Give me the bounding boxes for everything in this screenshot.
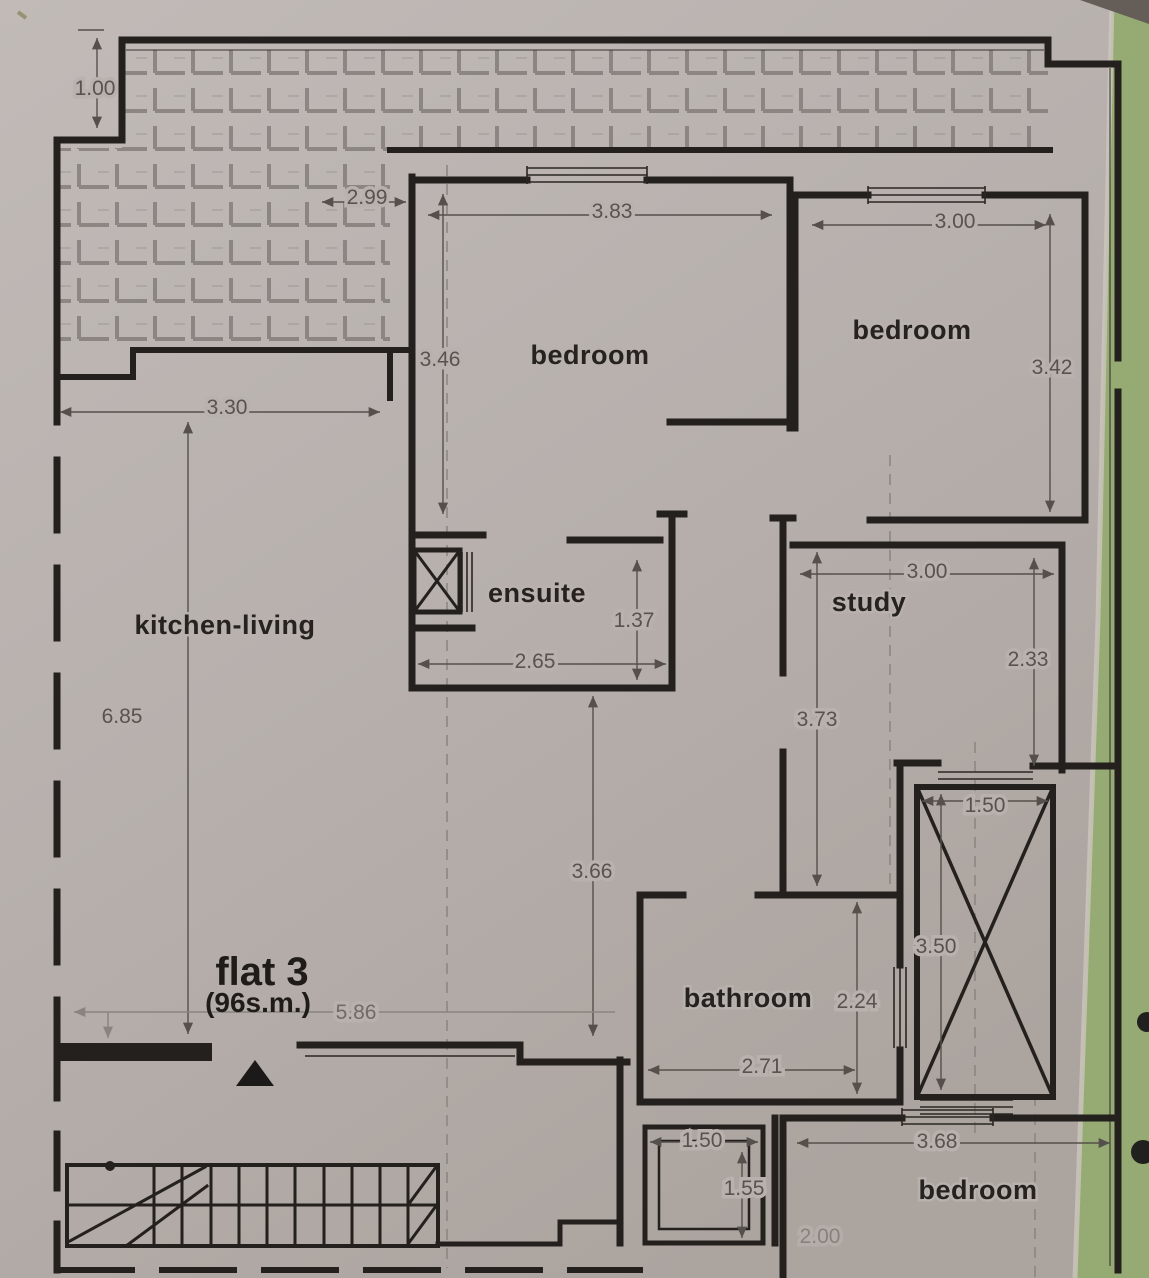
dim-hall-depth: 3.66 (572, 860, 613, 883)
stair-start-dot (105, 1161, 115, 1171)
dim-study-width: 3.00 (907, 560, 948, 583)
room-label-study: study (832, 587, 907, 617)
floor-plan: kitchen-living bedroom bedroom ensuite s… (0, 0, 1149, 1278)
dim-lift-width: 1.50 (965, 794, 1006, 817)
dim-duct-width: 1.50 (682, 1129, 723, 1152)
dim-ensuite-depth: 1.37 (614, 609, 655, 632)
dim-kitchen-width: 3.30 (207, 396, 248, 419)
dim-study-depth-right: 2.33 (1008, 648, 1049, 671)
room-label-bedroom-bottom: bedroom (918, 1175, 1037, 1205)
dim-kitchen-depth: 6.85 (102, 705, 143, 728)
dim-bedroom-right-width: 3.00 (935, 210, 976, 233)
dim-terrace-depth: 1.00 (75, 77, 116, 100)
dim-bathroom-width: 2.71 (742, 1055, 783, 1078)
dim-bedroom-main-width: 3.83 (592, 200, 633, 223)
dim-study-depth-left: 3.73 (797, 708, 838, 731)
room-label-bedroom-main: bedroom (530, 340, 649, 370)
dim-living-width: 5.86 (336, 1001, 377, 1024)
dim-duct-depth: 1.55 (724, 1177, 765, 1200)
room-label-bathroom: bathroom (684, 983, 813, 1013)
dim-ensuite-width: 2.65 (515, 650, 556, 673)
dim-bedroom-main-depth: 3.46 (420, 348, 461, 371)
room-label-ensuite: ensuite (488, 578, 586, 608)
room-label-kitchen-living: kitchen-living (134, 610, 315, 640)
dim-bathroom-depth: 2.24 (837, 990, 878, 1013)
dim-bedroom-right-depth: 3.42 (1032, 356, 1073, 379)
dim-lift-depth: 3.50 (916, 935, 957, 958)
dim-partial-bottom: 2.00 (800, 1225, 841, 1248)
flat-area-label: (96s.m.) (205, 987, 311, 1018)
floor-plan-photo: kitchen-living bedroom bedroom ensuite s… (0, 0, 1149, 1278)
dim-terrace-width: 2.99 (347, 186, 388, 209)
room-label-bedroom-right: bedroom (852, 315, 971, 345)
dim-bedroom-bottom-width: 3.68 (917, 1130, 958, 1153)
